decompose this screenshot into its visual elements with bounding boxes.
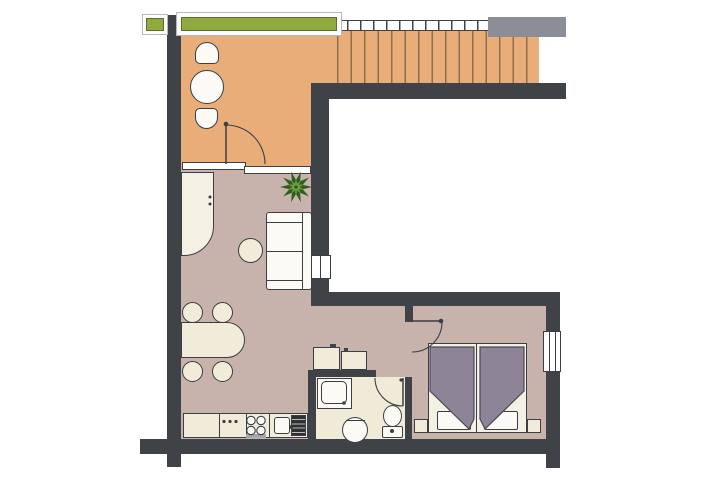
pillow [484,411,518,430]
nightstand [414,419,428,433]
oven-handle [246,434,266,438]
balcony-chair-top [195,42,219,64]
washbasin-back-edge [346,420,365,421]
stair-handrail-block [488,17,566,37]
balcony-table [190,70,224,104]
kitchen-sink [274,417,290,434]
hall-cabinet-right [341,351,367,370]
wall-below-stairs [329,83,566,99]
toilet-bowl [383,405,402,427]
bedroom-window [543,331,561,372]
hall-cabinet-left [313,347,340,370]
wall-right [546,292,560,468]
staircase-treads [337,29,539,84]
coffee-table [238,238,263,263]
stair-landing [311,31,340,83]
living-internal-window [309,255,331,279]
floor-plan [0,0,720,480]
stair-railing [333,20,491,31]
sliding-door-panel-1 [182,162,246,170]
sink-drainer [291,415,306,436]
planter-box-small [142,14,168,35]
sliding-door-panel-2 [244,166,311,174]
dining-chair [182,302,203,323]
dining-chair [212,361,233,382]
shower-tray [317,378,352,409]
toilet-tank [382,426,403,438]
dining-table [181,322,245,358]
nightstand [527,419,541,433]
wall-left [167,15,181,467]
wall-bedroom-door-stub [405,306,413,322]
sofa [266,212,312,290]
wall-bathroom-right [405,377,412,442]
dining-chair [212,302,233,323]
bed-divider [476,343,477,433]
dining-chair [182,361,203,382]
planter-box-long [176,12,342,36]
wall-bathroom-left [308,370,316,442]
wall-bedroom-top [311,292,560,306]
wall-bathroom-top [308,370,376,377]
pillow [437,411,471,430]
